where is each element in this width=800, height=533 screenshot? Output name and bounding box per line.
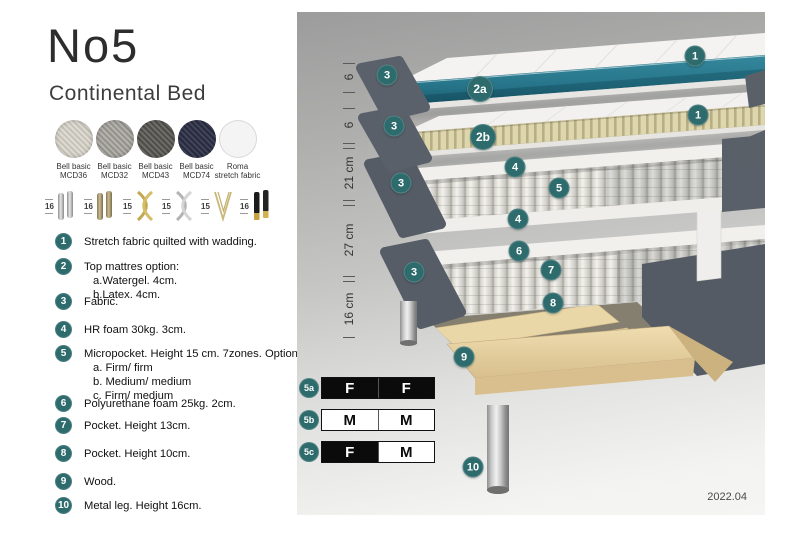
legend-number: 5 xyxy=(55,345,72,362)
swatch-code: stretch fabric xyxy=(215,171,261,180)
leg-cylinder-silver-icon xyxy=(55,188,79,224)
legend-number: 4 xyxy=(55,321,72,338)
legend-subitem: a.Watergel. 4cm. xyxy=(93,274,179,288)
leg-height: 16 xyxy=(45,202,54,211)
legend-item-9: 9 Wood. xyxy=(55,473,116,490)
dim-label-legs: 16 cm xyxy=(342,293,356,326)
legend-text: Pocket. Height 10cm. xyxy=(84,445,190,462)
leg-option: 15 xyxy=(201,188,240,224)
legend-item-1: 1 Stretch fabric quilted with wadding. xyxy=(55,233,257,250)
product-subtitle: Continental Bed xyxy=(49,82,206,106)
bed-cutaway-rendering xyxy=(297,12,765,515)
leg-option: 16 xyxy=(240,188,279,224)
swatch-code: MCD74 xyxy=(179,171,213,180)
dim-tick xyxy=(343,200,355,201)
firmness-row-5a: 5a F F xyxy=(299,377,435,399)
firmness-row-5b: 5b M M xyxy=(299,409,435,431)
firmness-row-5c: 5c F M xyxy=(299,441,435,463)
callout-2a: 2a xyxy=(467,76,493,102)
dim-label-top-mattress: 6 xyxy=(342,74,356,81)
leg-option: 15 xyxy=(123,188,162,224)
callout-3: 3 xyxy=(384,116,405,137)
leg-options: 16 16 15 15 xyxy=(45,188,279,224)
legend-subitem: b. Medium/ medium xyxy=(93,375,301,389)
legend-item-8: 8 Pocket. Height 10cm. xyxy=(55,445,190,462)
legend-item-6: 6 Polyurethane foam 25kg. 2cm. xyxy=(55,395,236,412)
dim-tick xyxy=(343,281,355,282)
legend-item-3: 3 Fabric. xyxy=(55,293,118,310)
fabric-swatch: Bell basicMCD43 xyxy=(135,120,176,180)
fabric-swatch-circle xyxy=(178,120,216,158)
firmness-cell: F xyxy=(322,378,378,398)
swatch-code: MCD32 xyxy=(97,171,131,180)
dim-tick xyxy=(343,143,355,144)
legend-text: Wood. xyxy=(84,473,116,490)
swatch-name: Bell basic xyxy=(138,162,172,171)
leg-cylinder-black-gold-icon xyxy=(250,188,274,224)
fabric-swatch-circle xyxy=(55,120,93,158)
legend-item-4: 4 HR foam 30kg. 3cm. xyxy=(55,321,186,338)
legend-text: Polyurethane foam 25kg. 2cm. xyxy=(84,395,236,412)
legend-text: Top mattres option: xyxy=(84,261,179,273)
firmness-cell: M xyxy=(322,410,378,430)
fabric-swatch: Bell basicMCD32 xyxy=(94,120,135,180)
legend-text: Metal leg. Height 16cm. xyxy=(84,497,202,514)
dim-tick xyxy=(343,276,355,277)
legend-text: Fabric. xyxy=(84,293,118,310)
dim-tick xyxy=(343,92,355,93)
leg-height: 16 xyxy=(84,202,93,211)
dim-tick xyxy=(343,205,355,206)
legend-number: 9 xyxy=(55,473,72,490)
product-infographic: No5 Continental Bed Bell basicMCD36 Bell… xyxy=(0,0,800,533)
callout-9: 9 xyxy=(454,347,475,368)
swatch-name: Bell basic xyxy=(179,162,213,171)
fabric-swatch-circle xyxy=(219,120,257,158)
callout-7: 7 xyxy=(541,260,562,281)
legend-number: 7 xyxy=(55,417,72,434)
dim-tick xyxy=(343,63,355,64)
callout-1: 1 xyxy=(688,105,709,126)
leg-hairpin-icon xyxy=(211,188,235,224)
callout-8: 8 xyxy=(543,293,564,314)
fabric-swatch-circle xyxy=(96,120,134,158)
dim-tick xyxy=(343,108,355,109)
swatch-code: MCD36 xyxy=(56,171,90,180)
callout-3: 3 xyxy=(391,173,412,194)
firmness-cell: M xyxy=(378,410,435,430)
legend-subitem: a. Firm/ firm xyxy=(93,361,301,375)
callout-4: 4 xyxy=(508,209,529,230)
version-date: 2022.04 xyxy=(707,491,747,503)
legend-text: HR foam 30kg. 3cm. xyxy=(84,321,186,338)
legend-text: Pocket. Height 13cm. xyxy=(84,417,190,434)
legend-text: Micropocket. Height 15 cm. 7zones. Optio… xyxy=(84,348,301,360)
fabric-swatch: Romastretch fabric xyxy=(217,120,258,180)
leg-cylinder-bronze-icon xyxy=(94,188,118,224)
fabric-swatches: Bell basicMCD36 Bell basicMCD32 Bell bas… xyxy=(53,120,258,180)
legend-number: 3 xyxy=(55,293,72,310)
swatch-name: Roma xyxy=(215,162,261,171)
leg-cross-gold-icon xyxy=(133,188,157,224)
leg-height: 15 xyxy=(123,202,132,211)
legend-text: Stretch fabric quilted with wadding. xyxy=(84,233,257,250)
legend-number: 1 xyxy=(55,233,72,250)
swatch-code: MCD43 xyxy=(138,171,172,180)
product-title: No5 xyxy=(47,18,139,73)
firmness-cell: F xyxy=(378,378,435,398)
dim-label-micropocket: 21 cm xyxy=(342,157,356,190)
callout-6: 6 xyxy=(509,241,530,262)
dim-tick xyxy=(343,148,355,149)
legend-number: 10 xyxy=(55,497,72,514)
callout-4: 4 xyxy=(505,157,526,178)
dim-label-latex-mattress: 6 xyxy=(342,122,356,129)
callout-3: 3 xyxy=(377,65,398,86)
swatch-name: Bell basic xyxy=(56,162,90,171)
firmness-badge: 5b xyxy=(299,410,319,430)
leg-option: 15 xyxy=(162,188,201,224)
firmness-badge: 5c xyxy=(299,442,319,462)
fabric-swatch: Bell basicMCD74 xyxy=(176,120,217,180)
callout-2b: 2b xyxy=(470,124,496,150)
callout-5: 5 xyxy=(549,178,570,199)
leg-option: 16 xyxy=(45,188,84,224)
fabric-swatch-circle xyxy=(137,120,175,158)
legend-number: 6 xyxy=(55,395,72,412)
firmness-cell: M xyxy=(378,442,435,462)
legend-item-10: 10 Metal leg. Height 16cm. xyxy=(55,497,202,514)
legend-number: 2 xyxy=(55,258,72,275)
dim-label-lower-box: 27 cm xyxy=(342,224,356,257)
callout-10: 10 xyxy=(463,457,484,478)
leg-height: 16 xyxy=(240,202,249,211)
legend-number: 8 xyxy=(55,445,72,462)
leg-option: 16 xyxy=(84,188,123,224)
leg-height: 15 xyxy=(201,202,210,211)
firmness-badge: 5a xyxy=(299,378,319,398)
legend-item-7: 7 Pocket. Height 13cm. xyxy=(55,417,190,434)
callout-3: 3 xyxy=(404,262,425,283)
fabric-swatch: Bell basicMCD36 xyxy=(53,120,94,180)
bed-cutaway-diagram: 6 6 21 cm 27 cm 16 cm 1 1 2a 2b 3 3 3 3 … xyxy=(297,12,765,515)
callout-1: 1 xyxy=(685,46,706,67)
leg-cross-silver-icon xyxy=(172,188,196,224)
swatch-name: Bell basic xyxy=(97,162,131,171)
leg-height: 15 xyxy=(162,202,171,211)
dim-tick xyxy=(343,337,355,338)
firmness-cell: F xyxy=(322,442,378,462)
